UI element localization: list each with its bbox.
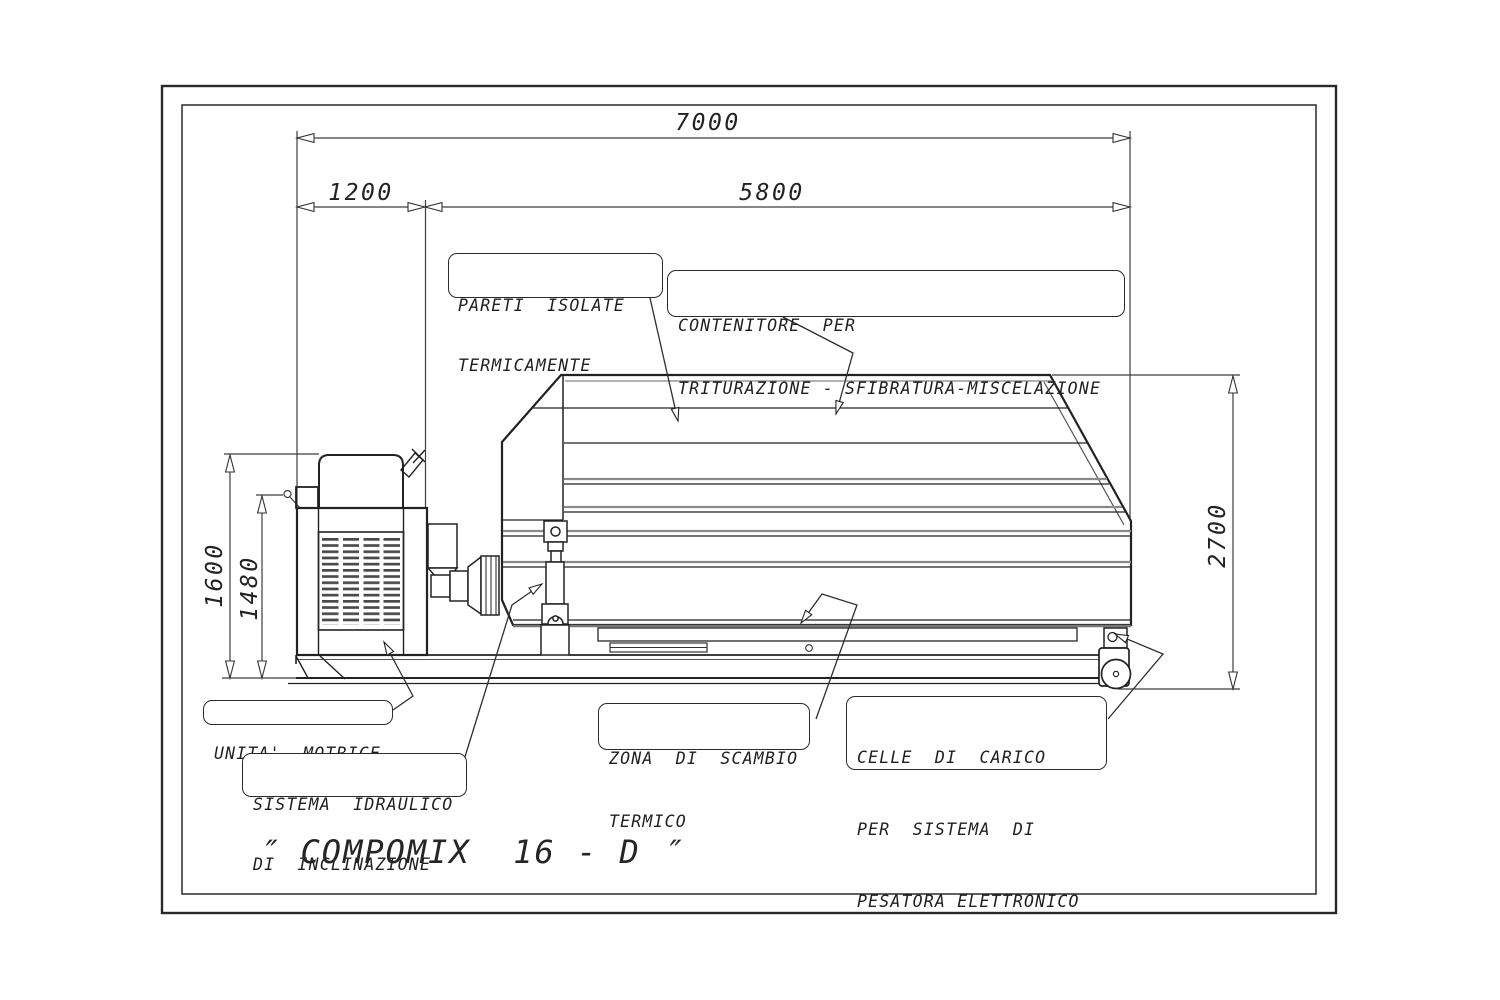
arrow-1480-bottom [258, 661, 267, 678]
arrow-2700-bottom [1229, 672, 1238, 689]
drawing-sheet: 7000 1200 5800 1600 1480 2700 PARETI ISO… [0, 0, 1500, 1000]
callout-line: ZONA DI SCAMBIO [609, 748, 799, 769]
callout-line: TERMICO [609, 811, 799, 832]
arrow-7000-left [297, 134, 314, 143]
callout-hydraulic-system: SISTEMA IDRAULICO DI INCLINAZIONE [242, 753, 467, 797]
arrow-1200-left [297, 203, 314, 212]
filler-cap [401, 449, 425, 477]
callout-line: TRITURAZIONE - SFIBRATURA-MISCELAZIONE [678, 378, 1114, 399]
foot-pin [553, 616, 558, 621]
leader-arrow [381, 640, 394, 655]
callout-insulated-walls: PARETI ISOLATE TERMICAMENTE [448, 253, 663, 298]
cylinder-neck [548, 542, 563, 551]
dim-text-5800: 5800 [727, 180, 817, 206]
callout-container: CONTENITORE PER TRITURAZIONE - SFIBRATUR… [667, 270, 1125, 317]
cylinder-pin-hole [551, 527, 560, 536]
base-frame [288, 655, 1106, 684]
machine-title: ″ COMPOMIX 16 - D ″ [258, 833, 683, 871]
callout-line: PARETI ISOLATE [458, 296, 653, 316]
cap-cross-1 [412, 449, 425, 462]
shaft-cone [468, 557, 481, 614]
cylinder-body [546, 562, 564, 604]
callout-heat-exchange: ZONA DI SCAMBIO TERMICO [598, 703, 810, 750]
leader-hook-1480 [284, 491, 291, 498]
plate-upper [598, 628, 1077, 641]
arrow-1480-top [258, 496, 267, 513]
callout-drive-unit: UNITA' MOTRICE [203, 700, 393, 725]
motor-top-cover [319, 455, 403, 508]
callout-line: SISTEMA IDRAULICO [253, 795, 456, 815]
shaft-step-1 [431, 575, 450, 597]
callout-line: CELLE DI CARICO [857, 746, 1096, 770]
leader-arrow [529, 581, 544, 594]
dim-text-1200: 1200 [316, 180, 406, 206]
arrow-2700-top [1229, 376, 1238, 393]
dim-text-1600: 1600 [202, 530, 228, 620]
leader-arrow [798, 610, 812, 625]
motor-unit [296, 449, 427, 655]
dim-text-1480: 1480 [237, 543, 263, 633]
grille-slats [322, 538, 401, 625]
pivot-pin [806, 645, 813, 652]
callout-load-cells: CELLE DI CARICO PER SISTEMA DI PESATORA … [846, 696, 1107, 770]
cylinder-rod [551, 551, 561, 562]
hydraulic-cylinder [541, 521, 569, 655]
heat-exchange-plate [598, 628, 1077, 652]
dim-text-7000: 7000 [663, 110, 753, 136]
callout-line: TERMICAMENTE [458, 356, 653, 376]
cylinder-pedestal [541, 625, 569, 655]
coupling-shaft [428, 524, 499, 615]
arrow-5800-right [1113, 203, 1130, 212]
arrow-1600-top [226, 455, 235, 472]
leader-arrowheads [381, 400, 1129, 655]
arrow-1600-bottom [226, 661, 235, 678]
callout-line: PESATORA ELETTRONICO [857, 890, 1096, 914]
callout-line: PER SISTEMA DI [857, 818, 1096, 842]
machine-drawing [288, 375, 1131, 689]
shaft-step-2 [450, 571, 468, 601]
motor-side-block [296, 487, 318, 508]
arrow-1200-right [408, 203, 425, 212]
wheel-hub [1113, 671, 1118, 676]
arrow-5800-left [425, 203, 442, 212]
arrow-7000-right [1113, 134, 1130, 143]
callout-line: CONTENITORE PER [678, 315, 1114, 336]
gearbox-block [428, 524, 457, 568]
dim-text-2700: 2700 [1205, 490, 1231, 580]
